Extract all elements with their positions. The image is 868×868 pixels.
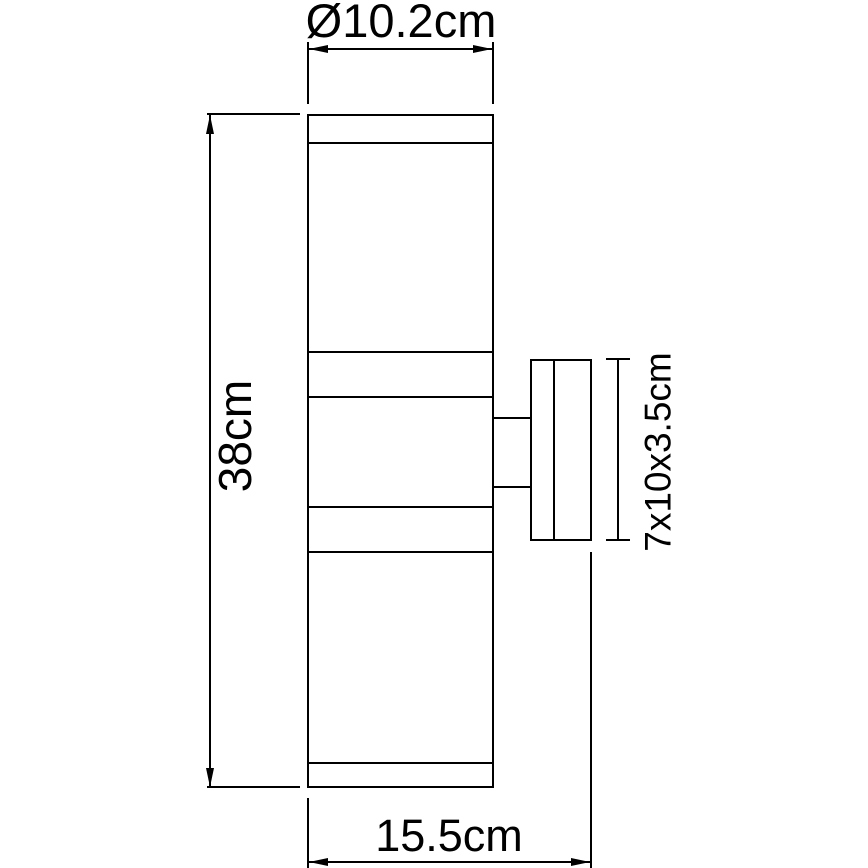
depth-dimension-extension-right [590,552,592,868]
fixture-band-line-top-cap [307,142,494,144]
depth-dimension-arrow-right [571,858,590,866]
fixture-band-line-lower-ring-top [307,506,494,508]
depth-dimension-label: 15.5cm [375,813,523,858]
diameter-dimension-line [309,48,492,50]
height-dimension-label: 38cm [212,380,258,492]
height-dimension-extension-top [207,113,300,115]
fixture-band-line-lower-ring-bottom [307,551,494,553]
mounting-bracket-divider-line [553,359,555,541]
fixture-body-outline [307,114,494,788]
fixture-band-line-bottom-cap [307,762,494,764]
mounting-arm-bottom-line [492,486,531,488]
diameter-dimension-label: Ø10.2cm [306,0,497,44]
bracket-dimension-line [617,359,619,540]
technical-drawing: Ø10.2cm 38cm 7x10x3.5cm 15.5cm [0,0,868,868]
depth-dimension-arrow-left [309,858,328,866]
height-dimension-extension-bottom [207,786,300,788]
mounting-arm-top-line [492,417,531,419]
fixture-band-line-upper-ring-bottom [307,396,494,398]
mounting-bracket-outline [530,359,592,541]
height-dimension-arrow-down [206,768,214,787]
diameter-dimension-extension-right [492,42,494,104]
height-dimension-arrow-up [206,115,214,134]
depth-dimension-line [309,861,590,863]
fixture-band-line-upper-ring-top [307,351,494,353]
bracket-dimension-label: 7x10x3.5cm [640,352,677,552]
